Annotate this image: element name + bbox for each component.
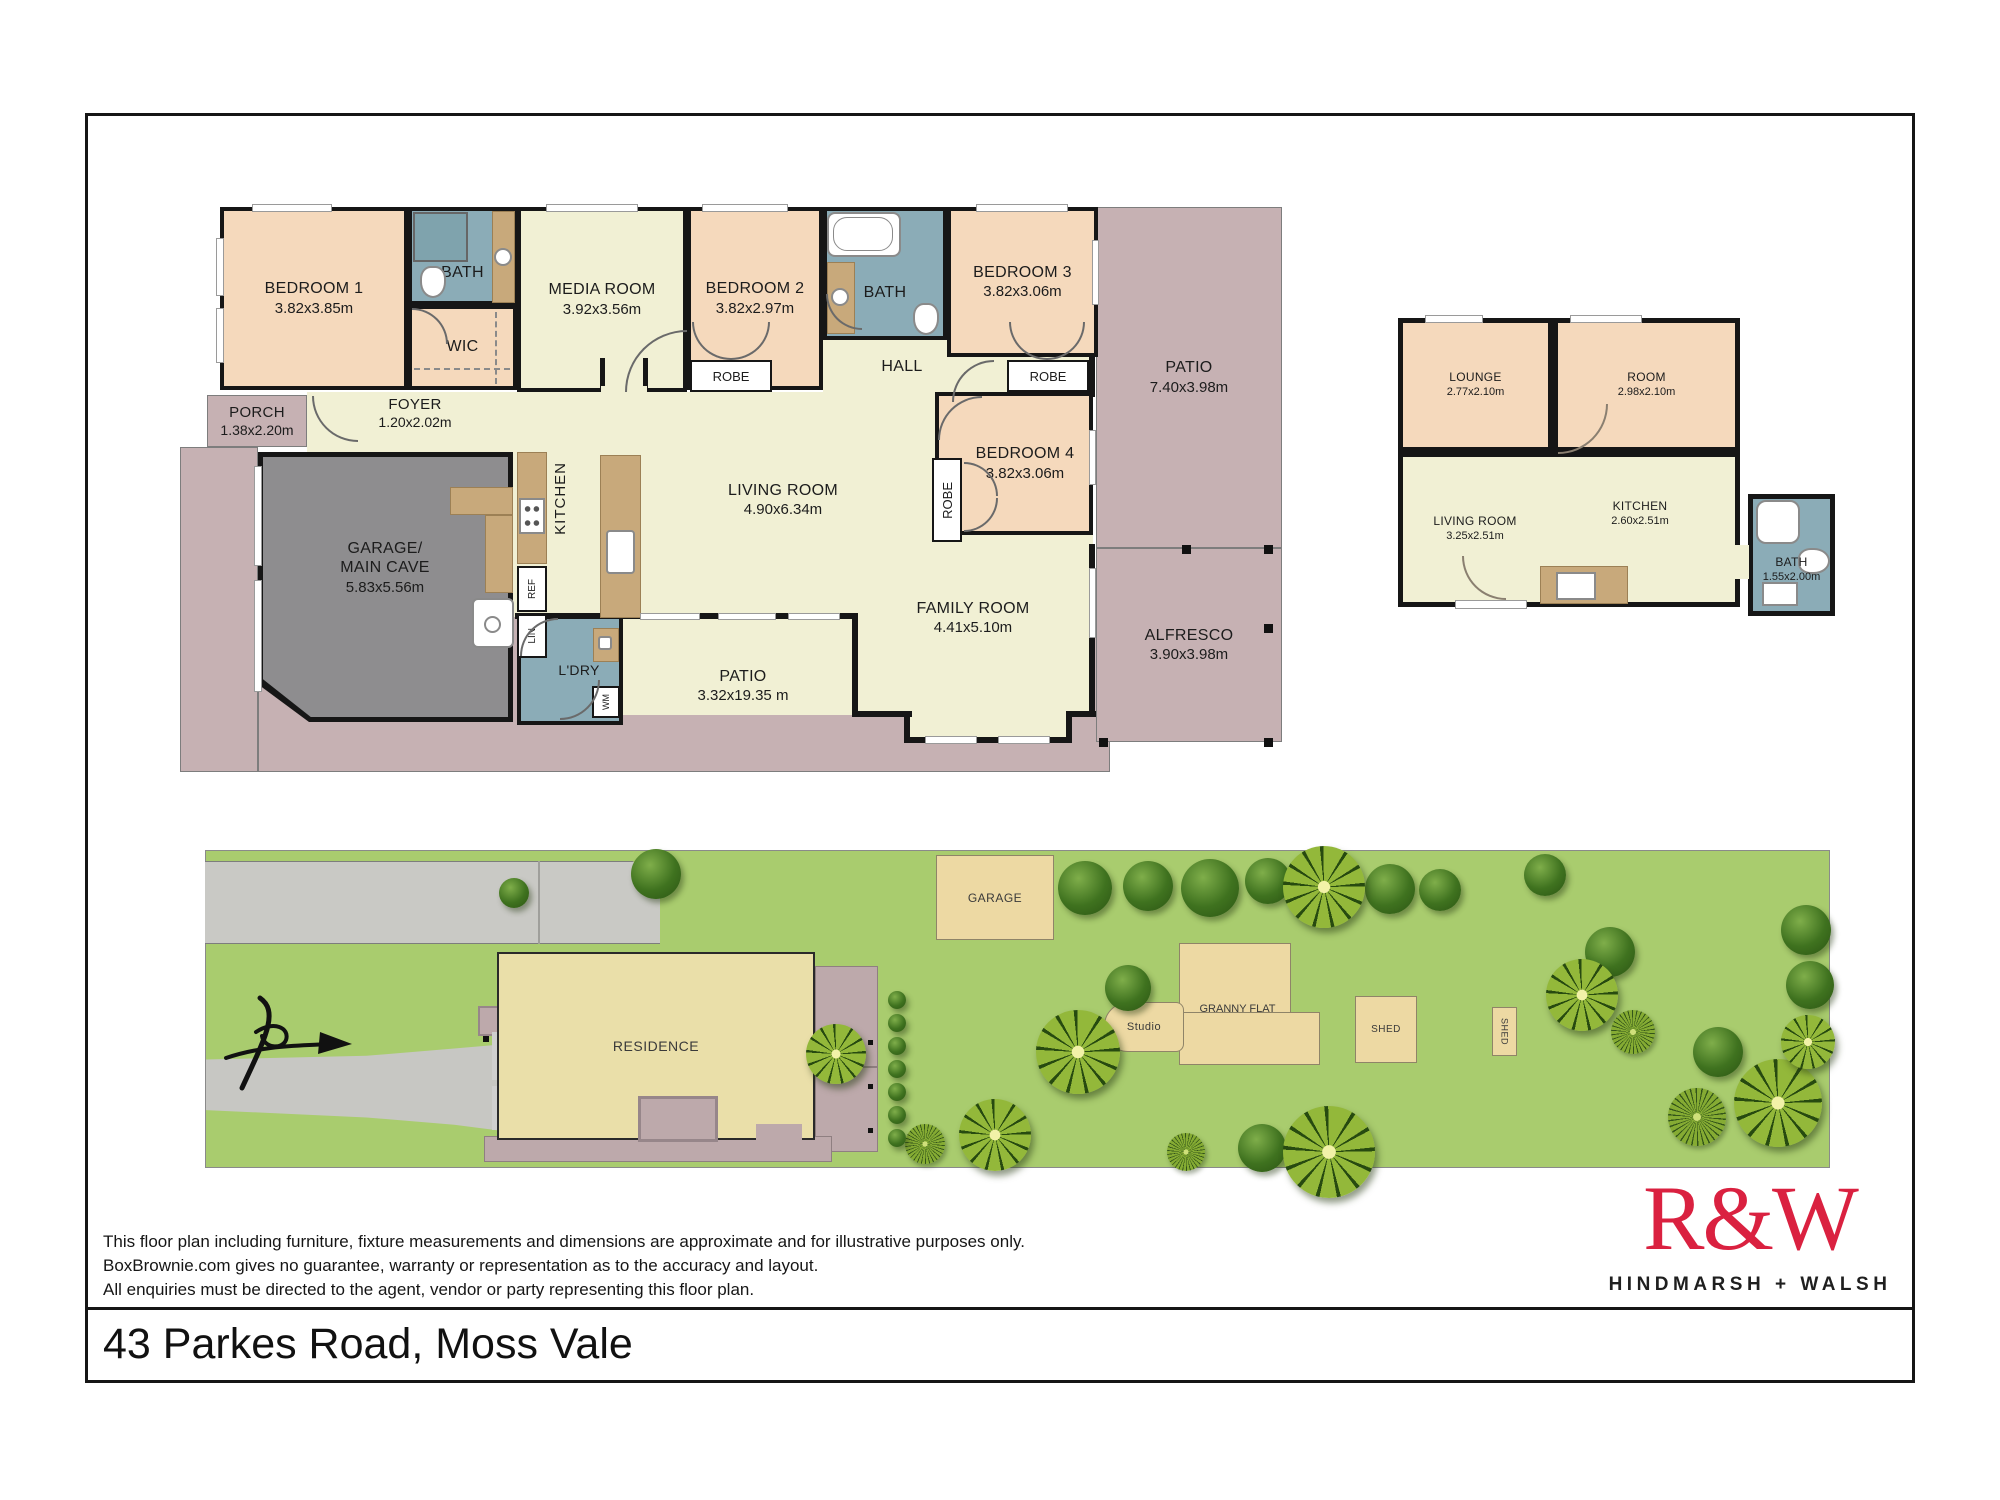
- alfresco-dims: 3.90x3.98m: [1150, 646, 1228, 663]
- tree-icon: [1283, 846, 1365, 928]
- window: [1089, 568, 1096, 638]
- tree-icon: [1238, 1124, 1286, 1172]
- gf-bath-dims: 1.55x2.00m: [1763, 571, 1820, 584]
- tree-icon: [888, 991, 906, 1009]
- patio-post: [1264, 624, 1273, 633]
- gf-kitchen-dims: 2.60x2.51m: [1611, 515, 1668, 528]
- toilet: [420, 266, 446, 298]
- hall-label-group: HALL: [857, 358, 947, 376]
- tree-icon: [631, 849, 681, 899]
- window: [702, 204, 788, 212]
- site-garage: GARAGE: [936, 855, 1054, 940]
- bedroom-2-label: BEDROOM 2: [706, 280, 805, 298]
- gf-lounge-label: LOUNGE: [1449, 371, 1501, 385]
- living-dims: 4.90x6.34m: [744, 501, 822, 518]
- gf-kitchen-sink: [1556, 572, 1596, 600]
- bedroom-1-dims: 3.82x3.85m: [275, 300, 353, 317]
- media-room-label: MEDIA ROOM: [548, 281, 655, 299]
- tree-icon: [888, 1083, 906, 1101]
- tree-icon: [1123, 861, 1173, 911]
- tree-icon: [1058, 861, 1112, 915]
- kitchen-label-group: KITCHEN: [548, 462, 574, 577]
- tree-icon: [888, 1129, 906, 1147]
- kitchen-sink: [606, 530, 635, 574]
- living-label-group: LIVING ROOM 4.90x6.34m: [718, 482, 848, 519]
- site-dot: [868, 1084, 873, 1089]
- porch-dims: 1.38x2.20m: [220, 422, 293, 438]
- tree-icon: [1786, 961, 1834, 1009]
- gf-door-gap: [1733, 545, 1749, 579]
- tree-icon: [905, 1124, 945, 1164]
- gf-lounge: LOUNGE 2.77x2.10m: [1398, 318, 1553, 452]
- gf-bath-label: BATH: [1775, 556, 1807, 570]
- floorplan-page: PATIO 7.40x3.98m ALFRESCO 3.90x3.98m POR…: [0, 0, 2000, 1500]
- shower: [413, 212, 468, 262]
- window: [998, 736, 1050, 744]
- tree-icon: [888, 1060, 906, 1078]
- site-shed-1: SHED: [1355, 996, 1417, 1063]
- hall-label: HALL: [881, 358, 922, 376]
- gf-kitchen-label-group: KITCHEN 2.60x2.51m: [1585, 500, 1695, 527]
- agency-logo: R&W HINDMARSH + WALSH: [1600, 1170, 1900, 1296]
- disclaimer-line-2: BoxBrownie.com gives no guarantee, warra…: [103, 1254, 1253, 1278]
- media-room-dims: 3.92x3.56m: [563, 301, 641, 318]
- tree-icon: [1167, 1133, 1205, 1171]
- bedroom-1-label: BEDROOM 1: [265, 280, 364, 298]
- patio-right-label: PATIO: [1165, 359, 1212, 377]
- patio-post: [1099, 738, 1108, 747]
- patio-post: [1264, 738, 1273, 747]
- tree-icon: [1668, 1088, 1726, 1146]
- site-studio-label: Studio: [1127, 1021, 1161, 1033]
- robe-bedroom3: ROBE: [1007, 360, 1089, 392]
- bathtub-inner: [833, 217, 893, 251]
- tree-icon: [888, 1014, 906, 1032]
- wall: [852, 613, 858, 717]
- site-residence-label: RESIDENCE: [613, 1038, 699, 1054]
- bedroom-1: BEDROOM 1 3.82x3.85m: [220, 207, 408, 390]
- window: [216, 308, 224, 363]
- basin: [494, 248, 512, 266]
- tree-icon: [1693, 1027, 1743, 1077]
- living-label: LIVING ROOM: [728, 482, 838, 500]
- garage-label-2: MAIN CAVE: [340, 559, 430, 577]
- window: [788, 613, 840, 620]
- gf-living-label-group: LIVING ROOM 3.25x2.51m: [1415, 515, 1535, 542]
- site-dot: [483, 1036, 489, 1042]
- window: [216, 238, 224, 296]
- gf-bath-basin: [1756, 500, 1800, 544]
- window: [976, 204, 1068, 212]
- agency-logo-subbrand: HINDMARSH + WALSH: [1600, 1274, 1900, 1296]
- fridge-label: REF: [527, 579, 538, 599]
- site-garage-label: GARAGE: [968, 891, 1022, 905]
- tree-icon: [1036, 1010, 1120, 1094]
- tree-icon: [1734, 1059, 1822, 1147]
- patio-left-strip: [180, 447, 258, 772]
- address-text: 43 Parkes Road, Moss Vale: [103, 1320, 633, 1368]
- gf-kitchen-label: KITCHEN: [1613, 500, 1668, 514]
- patio-post: [1264, 545, 1273, 554]
- patio-right: PATIO 7.40x3.98m: [1096, 207, 1282, 548]
- window: [718, 613, 776, 620]
- porch: PORCH 1.38x2.20m: [207, 395, 307, 447]
- garage-bench: [485, 515, 513, 593]
- alfresco: ALFRESCO 3.90x3.98m: [1096, 548, 1282, 742]
- family-dims: 4.41x5.10m: [934, 619, 1012, 636]
- site-shed-2-label: SHED: [1500, 1018, 1510, 1045]
- disclaimer-line-1: This floor plan including furniture, fix…: [103, 1230, 1253, 1254]
- toilet: [913, 303, 939, 335]
- tree-icon: [1524, 854, 1566, 896]
- bedroom-2-dims: 3.82x2.97m: [716, 300, 794, 317]
- bath-ensuite-label: BATH: [441, 264, 484, 282]
- robe-bedroom4: ROBE: [932, 458, 962, 542]
- gf-bath-sink: [1762, 582, 1798, 606]
- gf-bath-label-group: BATH 1.55x2.00m: [1748, 556, 1835, 583]
- bedroom-4-label: BEDROOM 4: [954, 445, 1075, 463]
- site-shed-2: SHED: [1492, 1007, 1517, 1056]
- bedroom-3-dims: 3.82x3.06m: [983, 283, 1061, 300]
- window: [546, 204, 638, 212]
- site-road-joint: [538, 861, 540, 944]
- site-dot: [868, 1128, 873, 1133]
- window: [640, 613, 700, 620]
- wic-shelves: [414, 368, 510, 386]
- kitchen-label: KITCHEN: [552, 462, 569, 535]
- window: [1092, 240, 1099, 305]
- window: [254, 580, 262, 692]
- tree-icon: [499, 878, 529, 908]
- tree-icon: [888, 1106, 906, 1124]
- porch-label: PORCH: [229, 404, 285, 421]
- stove: [519, 498, 545, 534]
- laundry-sink: [598, 636, 612, 650]
- gf-living-label: LIVING ROOM: [1433, 515, 1516, 529]
- disclaimer-line-3: All enquiries must be directed to the ag…: [103, 1278, 1253, 1302]
- robe-bedroom2: ROBE: [690, 360, 772, 392]
- gf-room-dims: 2.98x2.10m: [1618, 386, 1675, 399]
- window: [925, 736, 977, 744]
- site-garage-door-strip: [492, 1032, 497, 1080]
- tree-icon: [1365, 864, 1415, 914]
- footer-divider: [85, 1307, 1915, 1310]
- tree-icon: [1781, 905, 1831, 955]
- garage-label-group: GARAGE/ MAIN CAVE 5.83x5.56m: [285, 540, 485, 596]
- patio-post: [1182, 545, 1191, 554]
- site-dot: [868, 1040, 873, 1045]
- bath-main-label: BATH: [864, 284, 907, 302]
- family-label-group: FAMILY ROOM 4.41x5.10m: [898, 600, 1048, 637]
- site-residence-step: [756, 1124, 802, 1142]
- site-garage-door-strip: [492, 1086, 497, 1130]
- tree-icon: [1105, 965, 1151, 1011]
- tree-icon: [1283, 1106, 1375, 1198]
- site-granny-flat-lower: [1179, 1012, 1320, 1065]
- wall: [1089, 352, 1095, 397]
- gf-door-gap: [1455, 600, 1527, 609]
- site-shed-1-label: SHED: [1371, 1024, 1401, 1035]
- foyer-label: FOYER: [388, 396, 441, 413]
- garage-sink-basin: [484, 616, 501, 633]
- tree-icon: [806, 1024, 866, 1084]
- patio-bottom-label-group: PATIO 3.32x19.35 m: [658, 668, 828, 705]
- tree-icon: [1781, 1015, 1835, 1069]
- alfresco-label: ALFRESCO: [1145, 627, 1234, 645]
- address-bar: 43 Parkes Road, Moss Vale: [103, 1320, 1303, 1369]
- bedroom-3-label: BEDROOM 3: [973, 264, 1072, 282]
- gf-room-label: ROOM: [1627, 371, 1666, 385]
- foyer-label-group: FOYER 1.20x2.02m: [360, 396, 470, 430]
- site-road: [205, 861, 660, 944]
- site-granny-flat-label-box: GRANNY FLAT: [1180, 1000, 1295, 1018]
- fridge: REF: [517, 566, 547, 612]
- tree-icon: [959, 1099, 1031, 1171]
- garage-bench: [450, 487, 513, 515]
- north-arrow-icon: [222, 992, 357, 1097]
- patio-bottom-dims: 3.32x19.35 m: [698, 687, 789, 704]
- washing-machine-label: WM: [601, 694, 611, 710]
- window: [1570, 315, 1642, 323]
- robe-label: ROBE: [713, 369, 750, 384]
- site-granny-flat-label: GRANNY FLAT: [1200, 1003, 1276, 1015]
- laundry-label: L'DRY: [558, 662, 599, 678]
- robe-label: ROBE: [1030, 369, 1067, 384]
- family-label: FAMILY ROOM: [917, 600, 1030, 618]
- tree-icon: [1546, 959, 1618, 1031]
- site-residence-notch: [638, 1096, 718, 1142]
- agency-logo-brand: R&W: [1600, 1170, 1900, 1266]
- tree-icon: [1611, 1010, 1655, 1054]
- window: [1089, 430, 1096, 485]
- gf-living-dims: 3.25x2.51m: [1446, 530, 1503, 543]
- window: [1425, 315, 1483, 323]
- garage-dims: 5.83x5.56m: [346, 579, 424, 596]
- wic-label: WIC: [446, 338, 478, 356]
- disclaimer: This floor plan including furniture, fix…: [103, 1230, 1253, 1302]
- patio-right-dims: 7.40x3.98m: [1150, 379, 1228, 396]
- garage-label-1: GARAGE/: [347, 540, 422, 558]
- gf-lounge-dims: 2.77x2.10m: [1447, 386, 1504, 399]
- window: [252, 204, 332, 212]
- robe-label: ROBE: [940, 482, 955, 519]
- wall: [852, 711, 912, 717]
- patio-bottom-label: PATIO: [719, 668, 766, 686]
- tree-icon: [888, 1037, 906, 1055]
- foyer-dims: 1.20x2.02m: [378, 414, 451, 430]
- tree-icon: [1181, 859, 1239, 917]
- tree-icon: [1419, 869, 1461, 911]
- window: [254, 466, 262, 566]
